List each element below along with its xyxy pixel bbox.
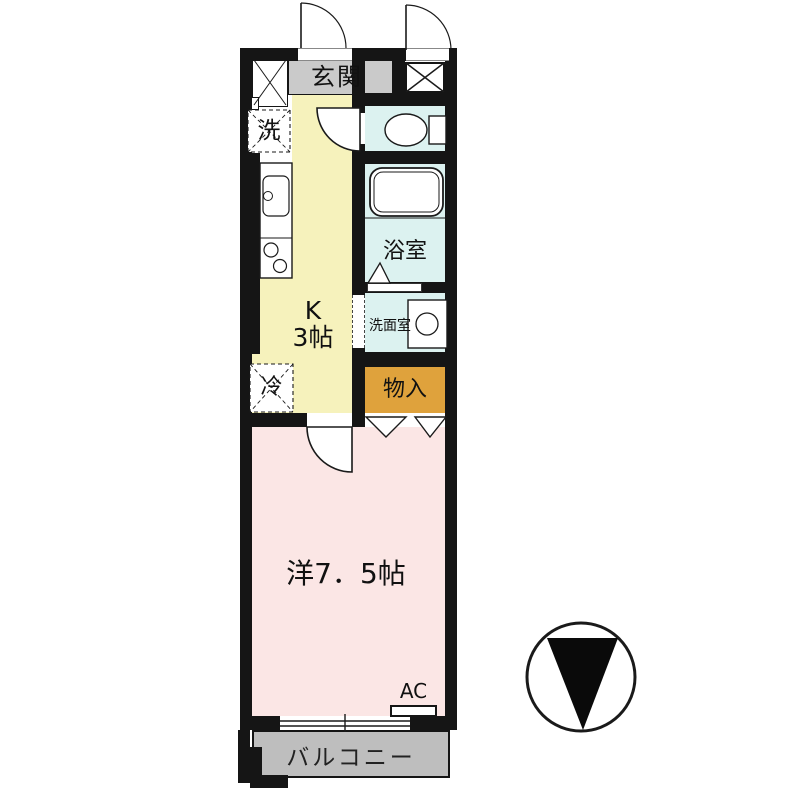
- kitchen-size: 3帖: [293, 324, 334, 352]
- bathroom-label: 浴室: [365, 238, 445, 266]
- main-room-door-icon: [307, 427, 352, 472]
- bath-door-icon: [368, 263, 390, 283]
- kitchen-counter-icon: [260, 163, 292, 278]
- ac-unit-box: [390, 705, 437, 717]
- washer-label: 洗: [248, 112, 290, 152]
- shaft-x-icon: [406, 63, 444, 92]
- entrance-door-icon: [301, 3, 346, 48]
- shaft-door-icon: [406, 5, 451, 50]
- floorplan-canvas: 玄関 洗 K 3帖 浴室 洗面室 物入 冷 洋7．5帖 AC バルコニー: [0, 0, 799, 800]
- main-room-label: 洋7．5帖: [246, 558, 446, 590]
- balcony-label: バルコニー: [252, 746, 450, 772]
- washroom-label: 洗面室: [352, 318, 428, 336]
- fridge-label: 冷: [250, 366, 293, 410]
- kitchen-name: K: [305, 297, 321, 325]
- bathtub-icon: [365, 168, 445, 218]
- shoe-cabinet-icon: [254, 60, 286, 105]
- entrance-label: 玄関: [288, 61, 386, 94]
- compass-icon: [527, 623, 635, 731]
- ac-label: AC: [390, 680, 437, 702]
- toilet-icon: [385, 114, 446, 146]
- storage-label: 物入: [365, 368, 445, 412]
- kitchen-door-icon: [317, 108, 360, 151]
- closet-folding-door-icon: [366, 417, 446, 437]
